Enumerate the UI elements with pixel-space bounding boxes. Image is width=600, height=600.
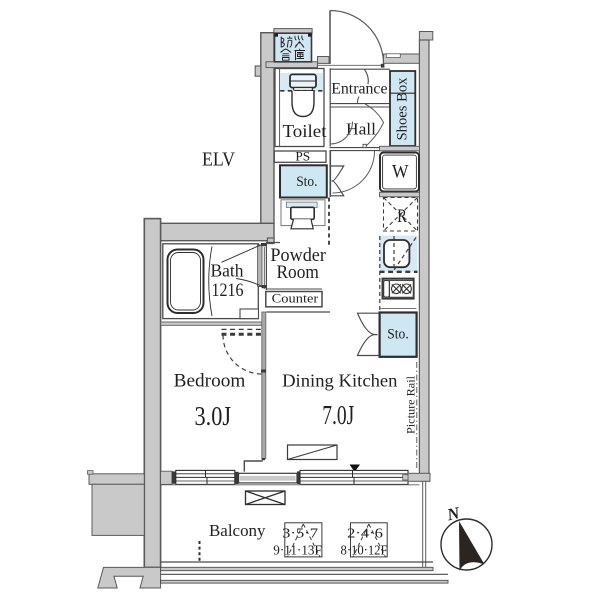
svg-text:Counter: Counter	[272, 291, 319, 305]
svg-text:1216: 1216	[212, 280, 244, 301]
svg-text:Picture Rail: Picture Rail	[404, 375, 418, 434]
svg-text:R: R	[397, 207, 407, 227]
svg-text:ELV: ELV	[202, 149, 235, 170]
svg-text:3.0J: 3.0J	[195, 400, 232, 431]
svg-text:Sto.: Sto.	[296, 174, 317, 190]
svg-text:Balcony: Balcony	[209, 521, 266, 540]
svg-text:7.0J: 7.0J	[322, 400, 354, 430]
svg-text:PS: PS	[295, 148, 310, 163]
svg-text:Shoes Box: Shoes Box	[395, 77, 411, 140]
svg-text:Hall: Hall	[346, 120, 376, 139]
svg-text:8·10·12F: 8·10·12F	[341, 543, 388, 558]
svg-text:Dining Kitchen: Dining Kitchen	[282, 371, 397, 391]
svg-text:Toilet: Toilet	[283, 121, 327, 141]
svg-text:Room: Room	[277, 263, 320, 283]
svg-text:9·11·13F: 9·11·13F	[273, 543, 322, 558]
svg-text:Entrance: Entrance	[331, 81, 387, 98]
svg-text:2·4·6: 2·4·6	[347, 526, 383, 541]
svg-text:Sto.: Sto.	[387, 327, 408, 343]
svg-text:3·5·7: 3·5·7	[282, 526, 318, 541]
svg-text:Bedroom: Bedroom	[174, 372, 246, 392]
svg-text:W: W	[392, 162, 409, 183]
svg-text:Bath: Bath	[211, 261, 244, 281]
